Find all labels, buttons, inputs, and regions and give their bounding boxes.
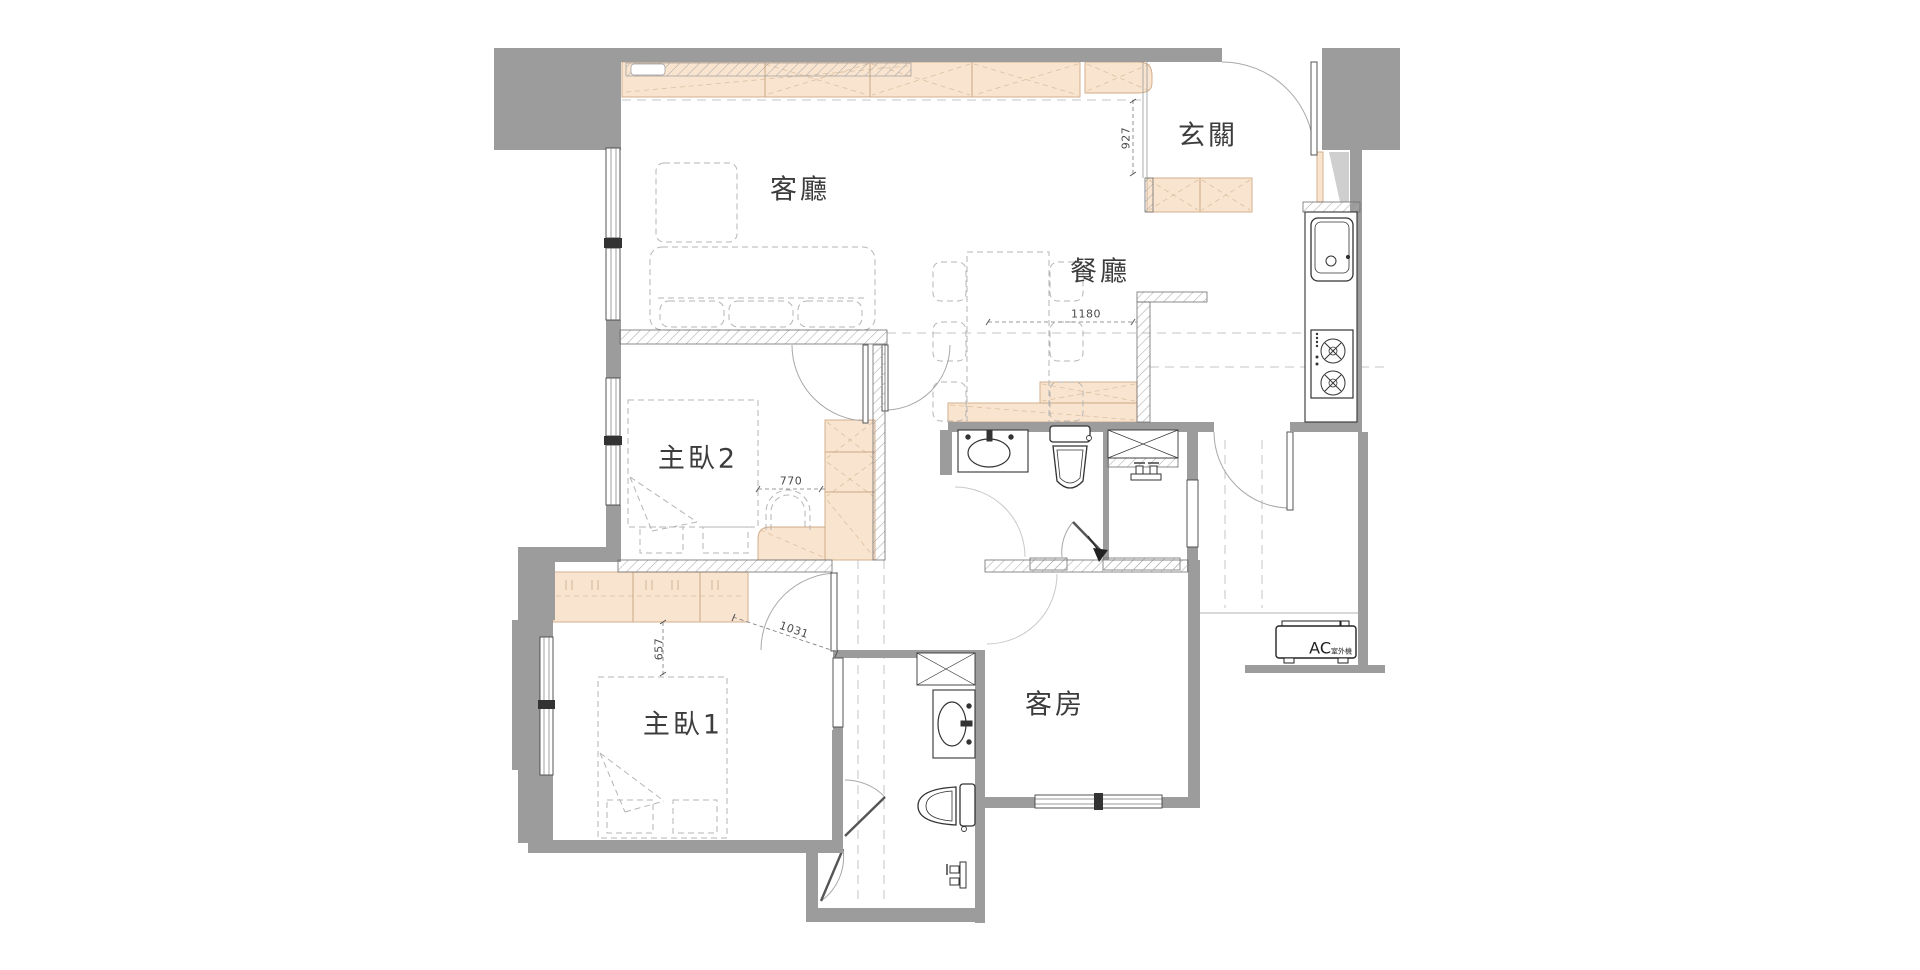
dimension-foyer: 927 <box>1120 127 1133 150</box>
dimension-master1: 657 <box>653 638 666 661</box>
faucet-icon <box>947 862 966 888</box>
bathroom1-door-arc <box>955 487 1025 557</box>
wall-wedge <box>1329 152 1349 202</box>
ac-label-main: AC <box>1309 639 1331 658</box>
washer-icon <box>1108 430 1178 458</box>
sink-icon <box>1311 218 1353 281</box>
dimension-dining: 1180 <box>1071 308 1101 321</box>
ac-label-sub: 室外機 <box>1331 648 1352 656</box>
bathroom2-door-arc <box>845 780 885 797</box>
laundry-door-arc <box>1062 522 1073 557</box>
beam-lines <box>622 100 1385 905</box>
guest-door-arc <box>987 574 1057 644</box>
room-label-foyer: 玄關 <box>1178 114 1238 153</box>
master2-door-arc <box>792 345 868 421</box>
basin-icon <box>958 430 1028 472</box>
room-label-dining: 餐廳 <box>1070 250 1130 289</box>
room-label-master1: 主臥1 <box>643 703 723 742</box>
tv-cabinet-outline <box>656 163 737 242</box>
chair-outline <box>766 490 810 530</box>
bathroom1-fixtures <box>958 426 1178 488</box>
tv-wall-strip <box>626 63 911 76</box>
bathroom2-fixtures <box>917 653 975 888</box>
kitchen-counter <box>1305 212 1357 422</box>
room-label-living: 客廳 <box>770 168 830 207</box>
sofa-outline <box>650 247 875 330</box>
floor-plan-drawing <box>0 0 1920 970</box>
dining-table-outline <box>967 252 1049 425</box>
toilet-icon <box>1050 426 1092 488</box>
dimension-master2: 770 <box>780 475 803 488</box>
basin-icon <box>933 690 975 758</box>
shower-box-icon <box>917 653 975 685</box>
room-label-guest: 客房 <box>1025 683 1085 722</box>
floor-plan: 客廳 餐廳 玄關 主臥2 主臥1 客房 927 1180 770 657 103… <box>0 0 1920 970</box>
toilet-icon <box>918 784 975 832</box>
partition-walls <box>618 178 1360 572</box>
room-label-master2: 主臥2 <box>658 437 738 476</box>
corridor-door-arc <box>885 345 950 410</box>
stove-icon <box>1311 330 1353 398</box>
bed1-outline <box>598 677 727 838</box>
ac-unit-label: AC室外機 <box>1309 639 1352 658</box>
